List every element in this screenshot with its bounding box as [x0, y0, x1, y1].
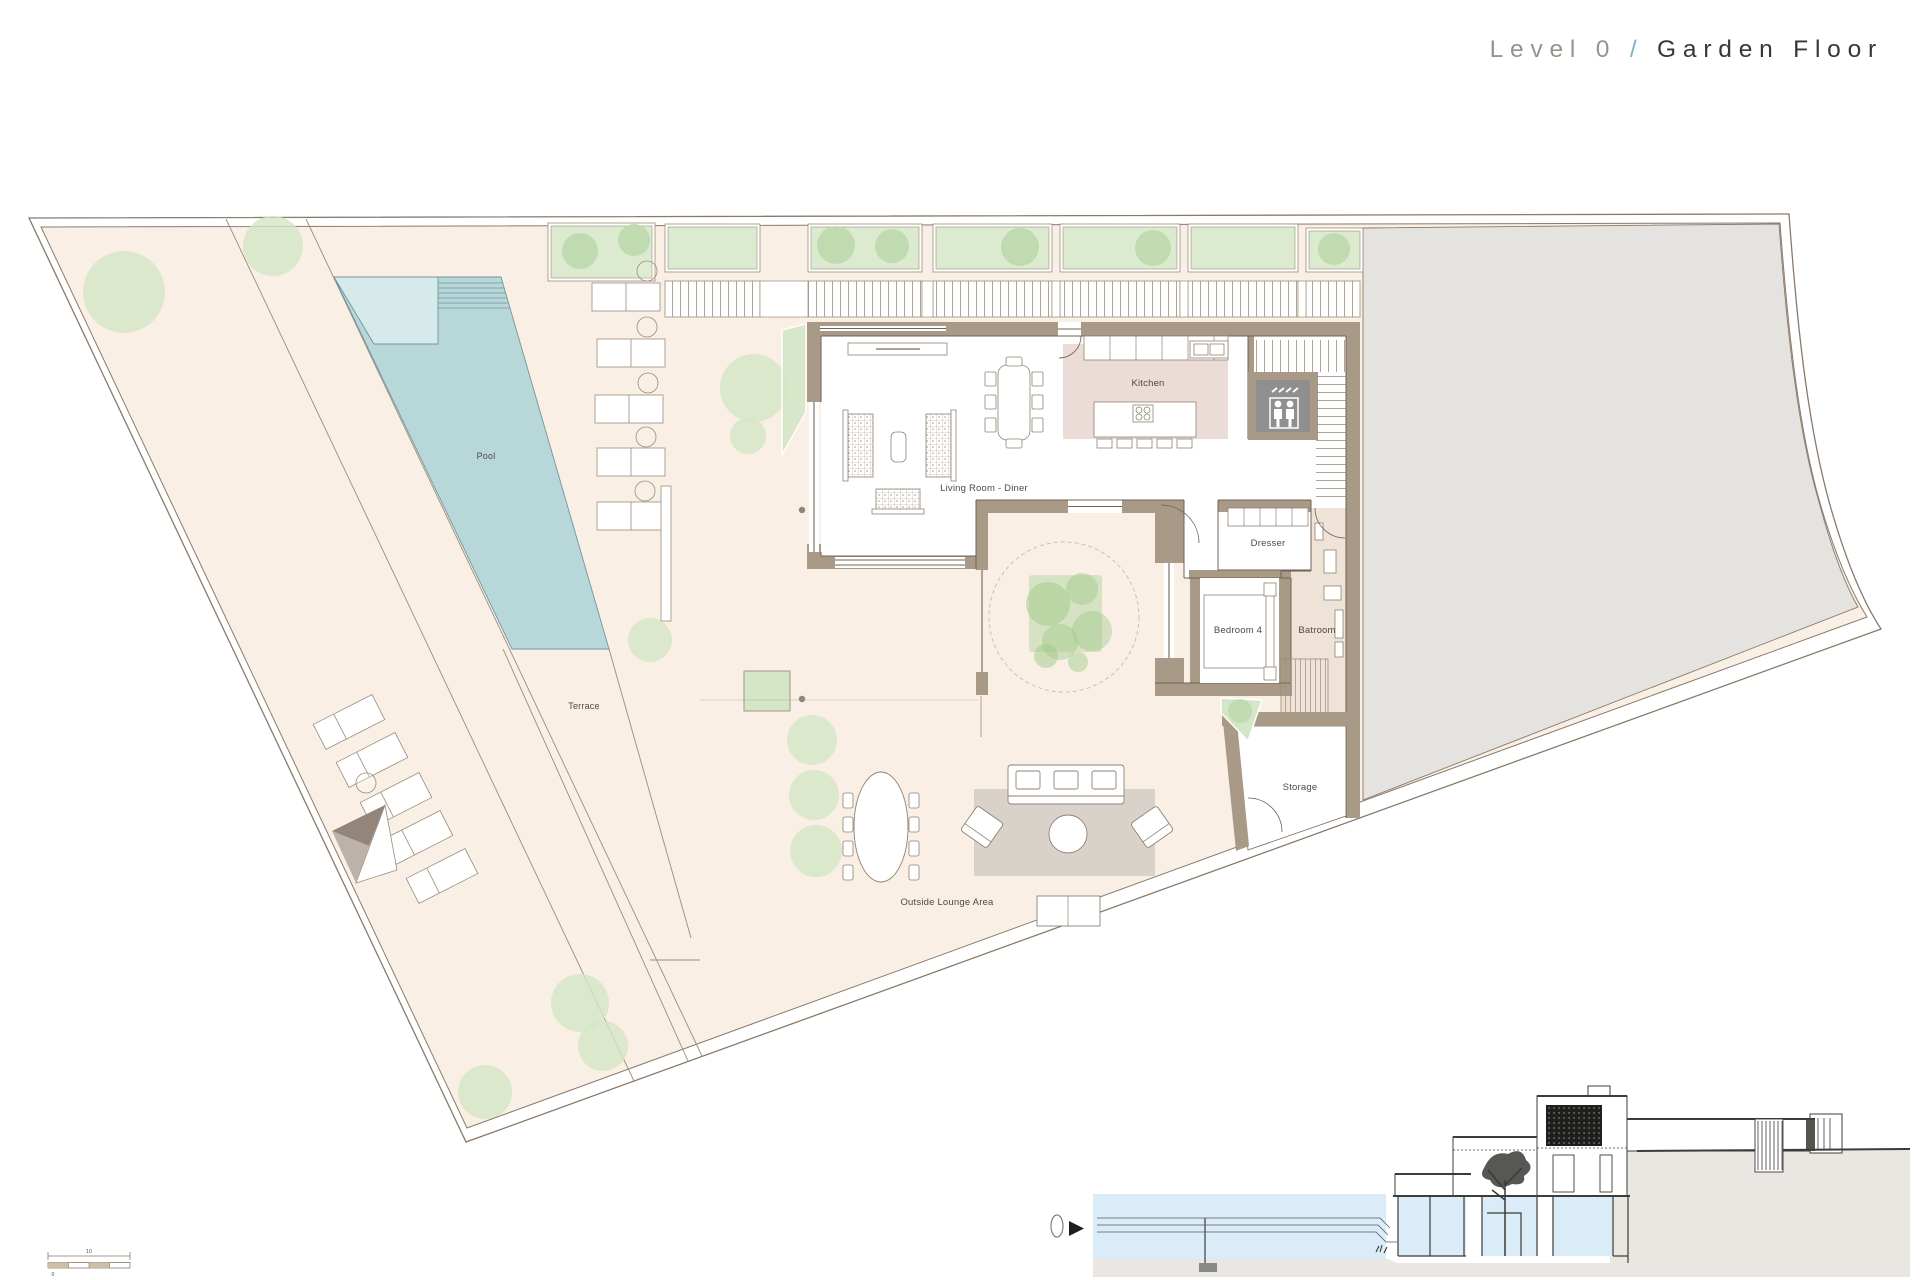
svg-text:10: 10	[86, 1249, 92, 1255]
svg-text:Outside Lounge Area: Outside Lounge Area	[900, 897, 994, 908]
svg-text:Kitchen: Kitchen	[1131, 378, 1164, 389]
svg-text:Level 0 / Garden Floor: Level 0 / Garden Floor	[1490, 36, 1883, 63]
svg-text:Dresser: Dresser	[1251, 538, 1286, 549]
svg-text:Pool: Pool	[477, 451, 496, 461]
svg-text:Living Room - Diner: Living Room - Diner	[940, 483, 1028, 494]
svg-text:Batroom: Batroom	[1298, 625, 1335, 636]
svg-text:Storage: Storage	[1283, 782, 1318, 793]
svg-text:0: 0	[52, 1272, 55, 1278]
svg-text:Terrace: Terrace	[568, 701, 599, 711]
svg-text:Bedroom 4: Bedroom 4	[1214, 625, 1262, 636]
